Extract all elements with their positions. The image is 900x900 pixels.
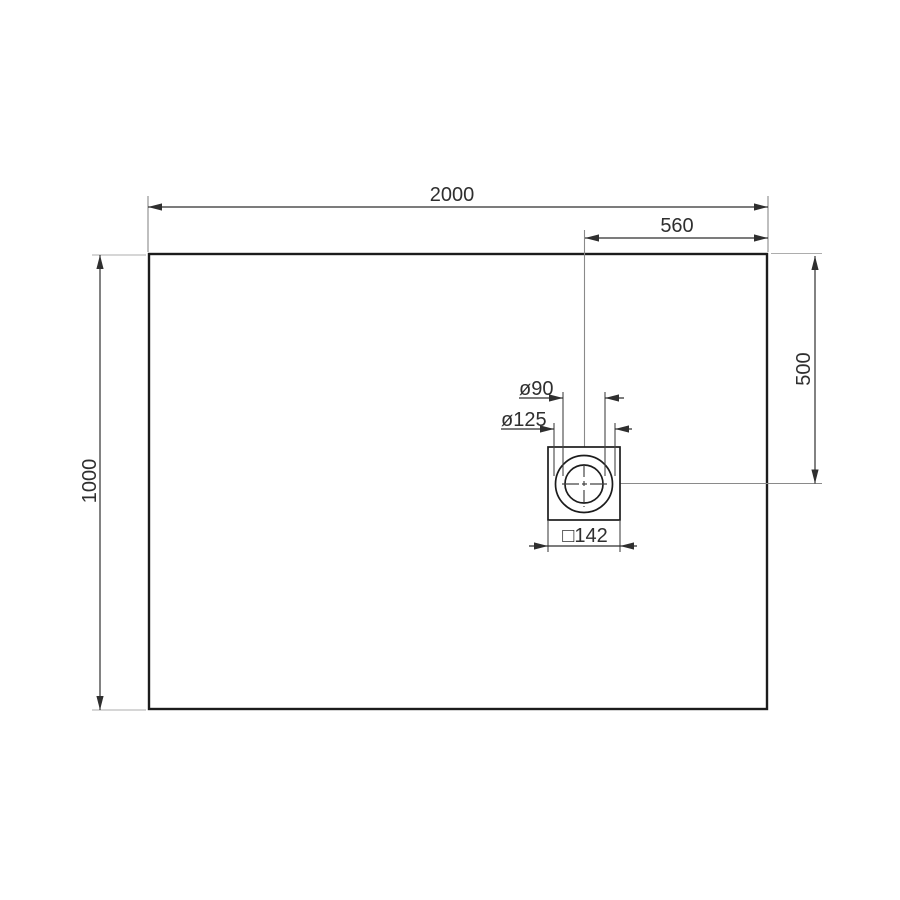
dim-drain-offset-top-label: 500 [793,352,815,385]
dim-drain-square-label: □142 [562,525,607,547]
arrow-down-icon [811,470,818,484]
dimension-drawing-canvas: 2000 560 1000 500 [0,0,900,900]
dim-drain-offset-right-label: 560 [660,215,693,237]
arrow-up-icon [96,255,103,269]
arrow-left-icon [585,234,599,241]
dim-width-label: 2000 [430,184,475,206]
tray-outline [149,254,767,709]
arrow-left-icon [615,425,629,432]
arrow-right-icon [754,203,768,210]
arrow-up-icon [811,256,818,270]
dim-drain-flange-label: ø125 [501,409,547,431]
tray-rect [149,254,767,709]
dim-depth-label: 1000 [79,459,101,504]
arrow-left-icon [620,542,634,549]
arrow-down-icon [96,696,103,710]
dim-drain-square: □142 [529,520,637,552]
dim-drain-hole-label: ø90 [519,378,553,400]
shower-tray-dimension-drawing: 2000 560 1000 500 [0,0,900,900]
dim-drain-offset-top: 500 [618,254,822,484]
dim-depth: 1000 [79,255,146,710]
arrow-left-icon [605,394,619,401]
arrow-right-icon [754,234,768,241]
drain-assembly [548,447,620,520]
arrow-left-icon [148,203,162,210]
arrow-right-icon [534,542,548,549]
